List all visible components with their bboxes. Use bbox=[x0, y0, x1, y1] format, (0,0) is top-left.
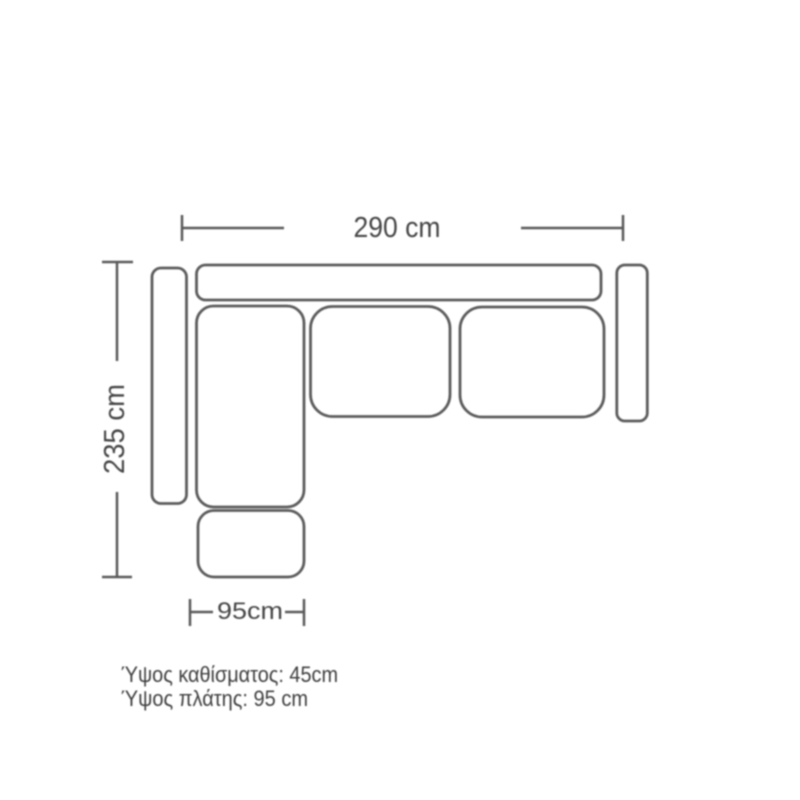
svg-text:Ύψος πλάτης: 95 cm: Ύψος πλάτης: 95 cm bbox=[121, 686, 308, 711]
svg-text:95cm: 95cm bbox=[217, 598, 283, 625]
svg-text:235 cm: 235 cm bbox=[99, 384, 131, 474]
svg-text:290 cm: 290 cm bbox=[354, 212, 441, 244]
svg-text:Ύψος καθίσματος: 45cm: Ύψος καθίσματος: 45cm bbox=[121, 662, 338, 687]
